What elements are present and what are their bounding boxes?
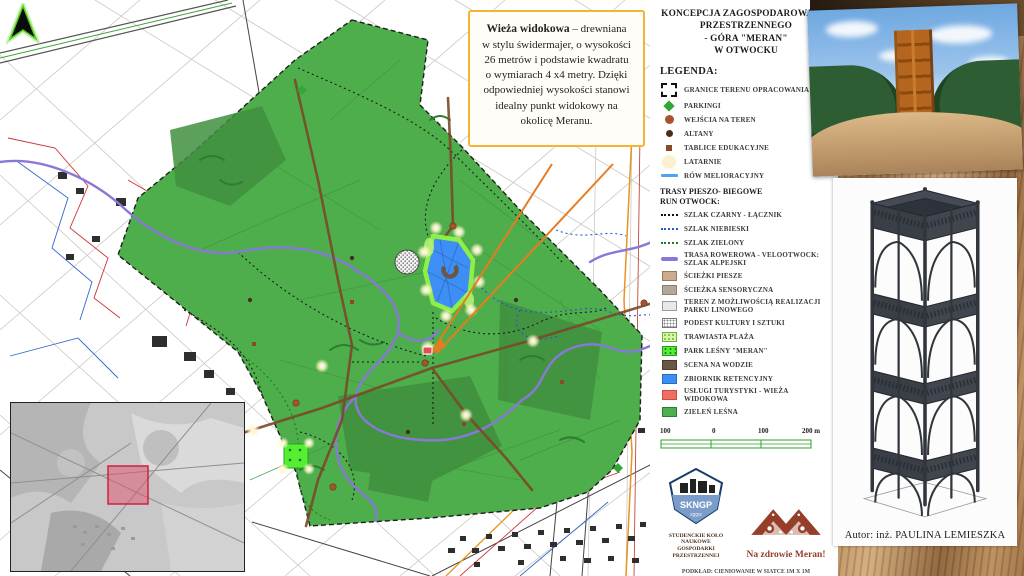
red-area-swatch: [660, 390, 678, 400]
legend-item: TABLICE EDUKACYJNE: [660, 142, 832, 153]
info-box-lead: Wieża widokowa: [487, 23, 570, 35]
lookout-tower-marker: [423, 347, 432, 354]
legend-item: PODEST KULTURY I SZTUKI: [660, 317, 832, 328]
legend-item: ALTANY: [660, 128, 832, 139]
meran-caption: Na zdrowie Meran!: [740, 550, 832, 560]
tower-info-box: Wieża widokowa – drewniana w stylu świde…: [468, 10, 645, 147]
hatched-area-swatch: [660, 318, 678, 328]
green-dotted-swatch: [660, 242, 678, 244]
legend-item: PARKINGI: [660, 100, 832, 111]
green-diamond-swatch: [660, 102, 678, 110]
poster-root: Wieża widokowa – drewniana w stylu świde…: [0, 0, 1024, 576]
meran-ornament-icon: [744, 502, 828, 544]
legend-item: ZBIORNIK RETENCYJNY: [660, 373, 832, 384]
graybrown-area-swatch: [660, 285, 678, 295]
black-dotted-swatch: [660, 214, 678, 216]
legend-item: TRAWIASTA PLAŻA: [660, 331, 832, 342]
legend-item: TRASA ROWEROWA - VELOOTWOCK: SZLAK ALPEJ…: [660, 251, 832, 267]
scale-bar-labels: 100 0 100 200 m: [660, 427, 832, 437]
north-arrow-icon: [6, 3, 40, 50]
skngp-caption: STUDENCKIE KOŁO NAUKOWE GOSPODARKI PRZES…: [660, 533, 732, 561]
legend-item: PARK LEŚNY "MERAN": [660, 345, 832, 356]
culture-platform: [395, 250, 419, 274]
legend-item: GRANICE TERENU OPRACOWANIA: [660, 83, 832, 97]
rust-circle-swatch: [660, 115, 678, 124]
legend-item: USŁUGI TURYSTYKI - WIEŻA WIDOKOWA: [660, 387, 832, 403]
basemap-footnote: PODKŁAD: CIENIOWANIE W SIATCE 1M X 1M EP…: [660, 568, 832, 576]
author-line: Autor: inż. PAULINA LEMIESZKA: [833, 530, 1017, 541]
purple-line-swatch: [660, 257, 678, 261]
cream-circle-swatch: [660, 157, 678, 167]
legend-item: ŚCIEŻKA SENSORYCZNA: [660, 284, 832, 295]
scale-bar-graphic: [660, 438, 820, 450]
tower-drawing-panel: Autor: inż. PAULINA LEMIESZKA: [833, 178, 1017, 546]
darkbrown-circle-swatch: [660, 130, 678, 137]
tan-area-swatch: [660, 271, 678, 281]
green-area-swatch: [660, 407, 678, 417]
tower-isometric-drawing: [833, 182, 1017, 527]
blue-line-swatch: [660, 174, 678, 177]
darkbrown-area-swatch: [660, 360, 678, 370]
legend-item: WEJŚCIA NA TEREN: [660, 114, 832, 125]
legend-item: SZLAK NIEBIESKI: [660, 223, 832, 234]
scale-bar: 100 0 100 200 m: [660, 427, 832, 453]
inset-highlight-rect: [108, 466, 148, 504]
logo-row: SKNGP sggw STUDENCKIE KOŁO NAUKOWE GOSPO…: [660, 467, 832, 561]
lightgreen-dotted-area-swatch: [660, 332, 678, 342]
svg-text:SKNGP: SKNGP: [680, 500, 712, 510]
legend-item: SZLAK ZIELONY: [660, 237, 832, 248]
skngp-shield-icon: SKNGP sggw: [668, 467, 724, 525]
svg-text:sggw: sggw: [690, 512, 702, 518]
lightgray-area-swatch: [660, 301, 678, 311]
legend-heading: LEGENDA:: [660, 66, 832, 77]
meran-logo: Na zdrowie Meran!: [740, 502, 832, 560]
dashed-boundary-swatch: [660, 83, 678, 97]
legend-item: SZLAK CZARNY - ŁĄCZNIK: [660, 209, 832, 220]
legend-item: ZIELEŃ LEŚNA: [660, 407, 832, 418]
legend-item: SCENA NA WODZIE: [660, 359, 832, 370]
legend-item: RÓW MELIORACYJNY: [660, 170, 832, 181]
poster-title: KONCEPCJA ZAGOSPODAROWANIA PRZESTRZENNEG…: [660, 8, 832, 57]
trails-section-heading: TRASY PIESZO- BIEGOWE RUN OTWOCK:: [660, 187, 832, 206]
legend-item: ŚCIEŻKI PIESZE: [660, 270, 832, 281]
blue-area-swatch: [660, 374, 678, 384]
tower-photo: [807, 3, 1023, 176]
meadow-square: [284, 444, 308, 468]
legend-item: LATARNIE: [660, 156, 832, 167]
blue-dotted-swatch: [660, 228, 678, 230]
brightgreen-dotted-area-swatch: [660, 346, 678, 356]
legend-item: TEREN Z MOŻLIWOŚCIĄ REALIZACJI PARKU LIN…: [660, 298, 832, 314]
skngp-logo: SKNGP sggw STUDENCKIE KOŁO NAUKOWE GOSPO…: [660, 467, 732, 561]
brown-square-swatch: [660, 145, 678, 151]
photo-wooden-tower: [894, 30, 935, 123]
info-box-body: – drewniana w stylu świdermajer, o wysok…: [482, 23, 631, 127]
locator-inset-map: [10, 402, 245, 572]
